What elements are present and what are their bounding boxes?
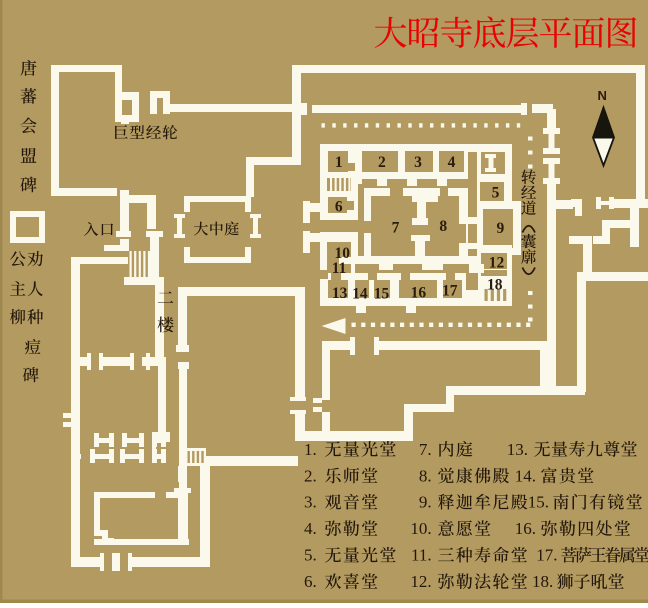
svg-text:16: 16	[411, 284, 427, 301]
svg-text:11: 11	[332, 260, 347, 277]
svg-text:13.: 13.	[507, 440, 528, 459]
svg-text:3.: 3.	[304, 493, 317, 512]
svg-text:5: 5	[492, 185, 500, 202]
svg-text:16.: 16.	[515, 519, 536, 538]
svg-text:4.: 4.	[304, 519, 317, 538]
svg-text:4: 4	[448, 154, 456, 171]
svg-text:9: 9	[497, 220, 505, 237]
svg-text:8.: 8.	[419, 466, 432, 485]
svg-text:8: 8	[439, 218, 447, 235]
svg-text:7: 7	[392, 220, 400, 237]
svg-text:N: N	[598, 88, 607, 103]
svg-text:18.: 18.	[532, 572, 553, 591]
svg-text:9.: 9.	[419, 493, 432, 512]
svg-text:15.: 15.	[528, 493, 549, 512]
svg-text:14.: 14.	[515, 466, 536, 485]
svg-text:1: 1	[335, 154, 343, 171]
svg-text:17: 17	[442, 283, 458, 300]
svg-text:15: 15	[374, 286, 390, 303]
svg-text:13: 13	[332, 285, 348, 302]
svg-text:6: 6	[335, 199, 343, 216]
svg-text:5.: 5.	[304, 546, 317, 565]
svg-text:1.: 1.	[304, 440, 317, 459]
svg-text:3: 3	[414, 154, 422, 171]
svg-text:6.: 6.	[304, 572, 317, 591]
svg-text:18: 18	[487, 276, 503, 293]
svg-text:12.: 12.	[410, 572, 431, 591]
svg-text:2.: 2.	[304, 466, 317, 485]
svg-text:7.: 7.	[419, 440, 432, 459]
svg-text:17.: 17.	[536, 546, 557, 565]
svg-text:2: 2	[378, 154, 386, 171]
svg-text:11.: 11.	[411, 546, 432, 565]
svg-text:12: 12	[489, 254, 505, 271]
svg-text:10.: 10.	[410, 519, 431, 538]
svg-text:14: 14	[352, 286, 368, 303]
